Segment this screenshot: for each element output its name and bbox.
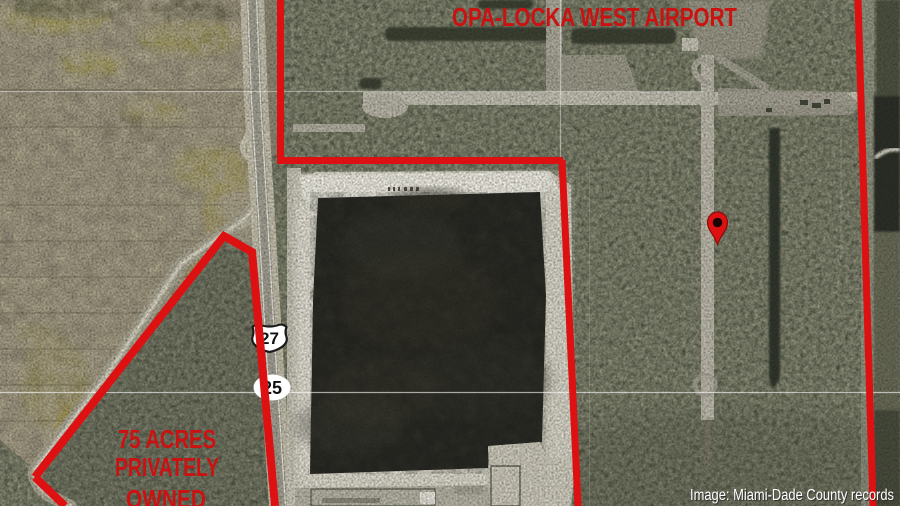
svg-text:OWNED: OWNED	[126, 484, 206, 506]
svg-text:OPA-LOCKA WEST AIRPORT: OPA-LOCKA WEST AIRPORT	[452, 2, 737, 32]
svg-text:Image: Miami-Dade County recor: Image: Miami-Dade County records	[690, 487, 894, 504]
svg-text:PRIVATELY: PRIVATELY	[115, 452, 219, 482]
svg-text:75 ACRES: 75 ACRES	[118, 424, 216, 454]
